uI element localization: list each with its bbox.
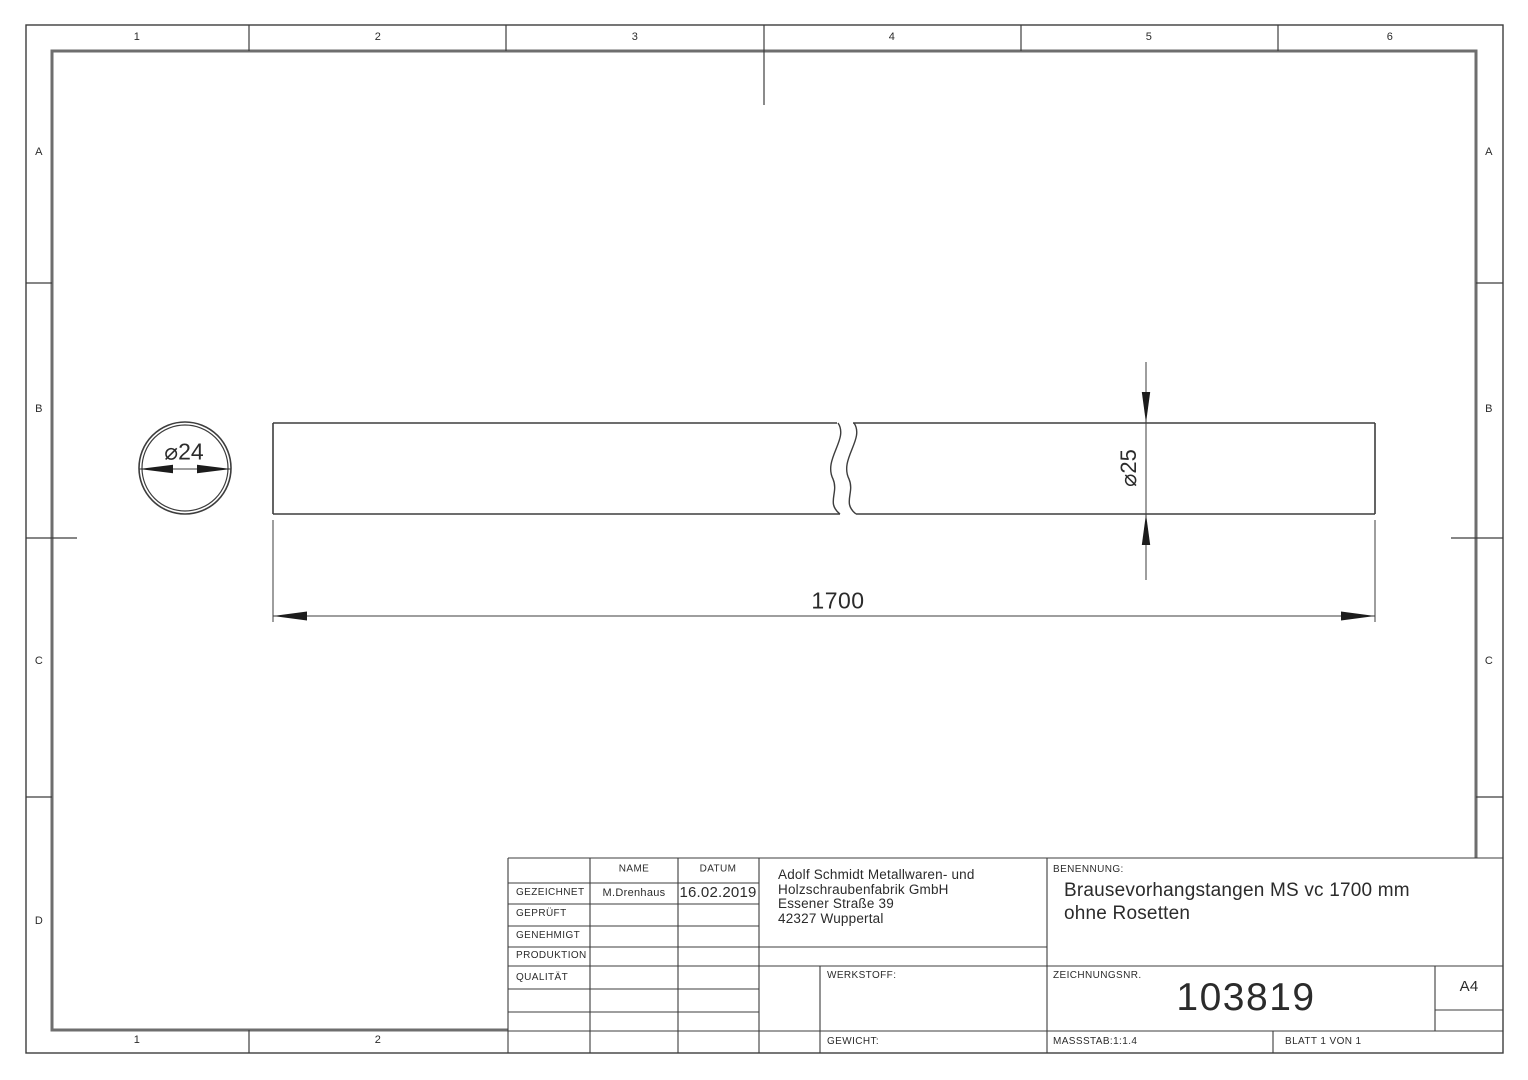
zone-col-label: 4: [889, 32, 895, 44]
zone-row-label: A: [35, 147, 43, 159]
zone-col-label: 2: [375, 32, 381, 44]
approval-name: M.Drenhaus: [603, 888, 666, 900]
approval-role: PRODUKTION: [516, 951, 587, 962]
zone-row-label: D: [35, 916, 43, 928]
zone-row-label: C: [1485, 656, 1493, 668]
part-title: Brausevorhangstangen MS vc 1700 mm ohne …: [1064, 880, 1410, 925]
zone-col-label: 2: [375, 1035, 381, 1047]
arrowhead-right-icon: [1341, 612, 1375, 621]
zone-col-label: 3: [632, 32, 638, 44]
zone-col-label: 6: [1387, 32, 1393, 44]
arrowhead-up-icon: [1142, 514, 1150, 545]
company-line: Adolf Schmidt Metallwaren- und: [778, 868, 975, 883]
drawing-number-label: ZEICHNUNGSNR.: [1053, 971, 1142, 982]
dim-diameter25-label: ⌀25: [1117, 449, 1141, 487]
part-title-line: Brausevorhangstangen MS vc 1700 mm: [1064, 880, 1410, 903]
zone-row-label: C: [35, 656, 43, 668]
part-title-label: BENENNUNG:: [1053, 865, 1124, 876]
break-lines: [831, 423, 857, 514]
drawing-number: 103819: [1176, 977, 1315, 1019]
arrowhead-left-icon: [273, 612, 307, 621]
centering-marks: [26, 25, 1503, 538]
weight-label: GEWICHT:: [827, 1037, 879, 1048]
dim-diameter24-label: ⌀24: [164, 440, 203, 465]
company-line: Holzschraubenfabrik GmbH: [778, 883, 975, 898]
part-title-line: ohne Rosetten: [1064, 903, 1410, 926]
zone-row-label: B: [1485, 404, 1493, 416]
zone-col-label: 1: [134, 1035, 140, 1047]
approval-role: QUALITÄT: [516, 973, 568, 984]
company-line: Essener Straße 39: [778, 897, 975, 912]
dim-length-label: 1700: [811, 589, 864, 614]
zone-col-label: 1: [134, 32, 140, 44]
name-column-header: NAME: [619, 865, 650, 876]
company-address: Adolf Schmidt Metallwaren- und Holzschra…: [778, 868, 975, 926]
scale-label: MASSSTAB:1:1.4: [1053, 1037, 1137, 1048]
sheet-number-label: BLATT 1 VON 1: [1285, 1037, 1362, 1048]
drawing-sheet: 1 2 3 4 5 6 1 2 A B C D A B C ⌀24 ⌀25 17…: [0, 0, 1528, 1080]
rod-outline: [273, 423, 1375, 514]
date-column-header: DATUM: [700, 865, 737, 876]
approval-role: GEPRÜFT: [516, 909, 567, 920]
material-label: WERKSTOFF:: [827, 971, 896, 982]
zone-col-label: 5: [1146, 32, 1152, 44]
arrowhead-down-icon: [1142, 392, 1150, 423]
approval-role: GENEHMIGT: [516, 931, 580, 942]
paper-format: A4: [1460, 979, 1479, 995]
zone-dividers-sides: [26, 283, 1503, 797]
arrowhead-left-icon: [139, 465, 173, 473]
approval-role: GEZEICHNET: [516, 888, 584, 899]
approval-date: 16.02.2019: [679, 885, 756, 901]
company-line: 42327 Wuppertal: [778, 912, 975, 927]
arrowhead-right-icon: [197, 465, 231, 473]
zone-row-label: A: [1485, 147, 1493, 159]
zone-row-label: B: [35, 404, 43, 416]
